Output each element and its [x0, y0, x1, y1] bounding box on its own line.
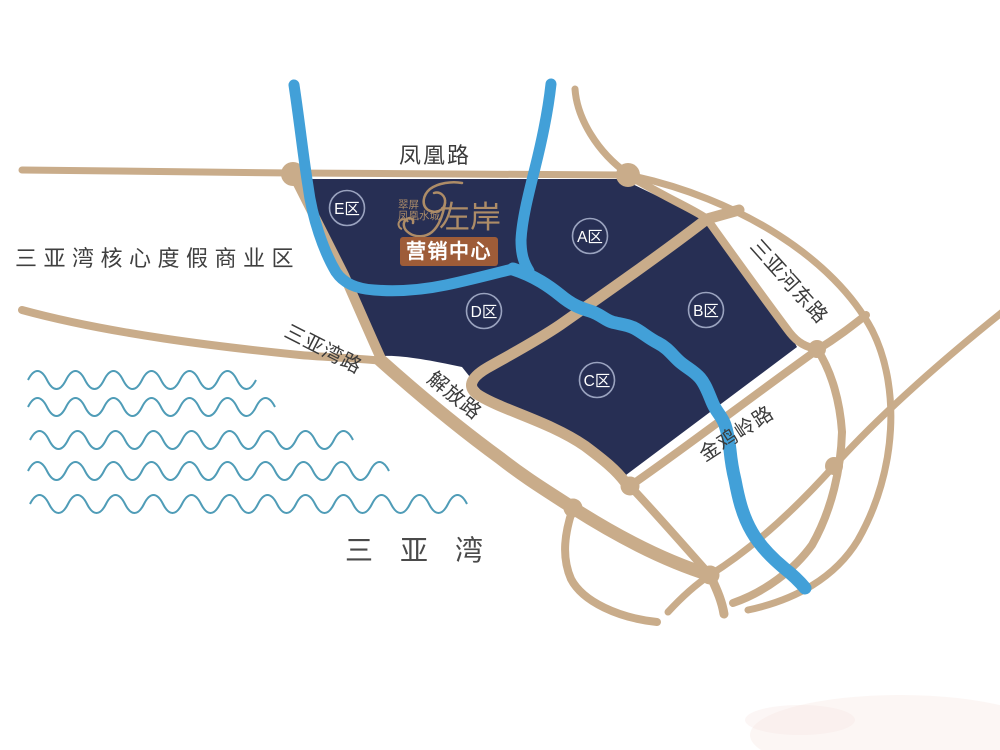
- svg-text:三亚湾: 三亚湾: [345, 535, 510, 566]
- svg-text:E区: E区: [334, 201, 360, 218]
- svg-text:B区: B区: [693, 303, 719, 320]
- svg-text:三亚湾核心度假商业区: 三亚湾核心度假商业区: [15, 246, 300, 271]
- svg-text:营销中心: 营销中心: [406, 239, 492, 263]
- svg-text:C区: C区: [584, 373, 611, 390]
- svg-text:D区: D区: [471, 304, 498, 321]
- svg-text:左岸: 左岸: [439, 200, 501, 235]
- svg-text:A区: A区: [577, 229, 603, 246]
- svg-text:凤凰路: 凤凰路: [399, 143, 471, 168]
